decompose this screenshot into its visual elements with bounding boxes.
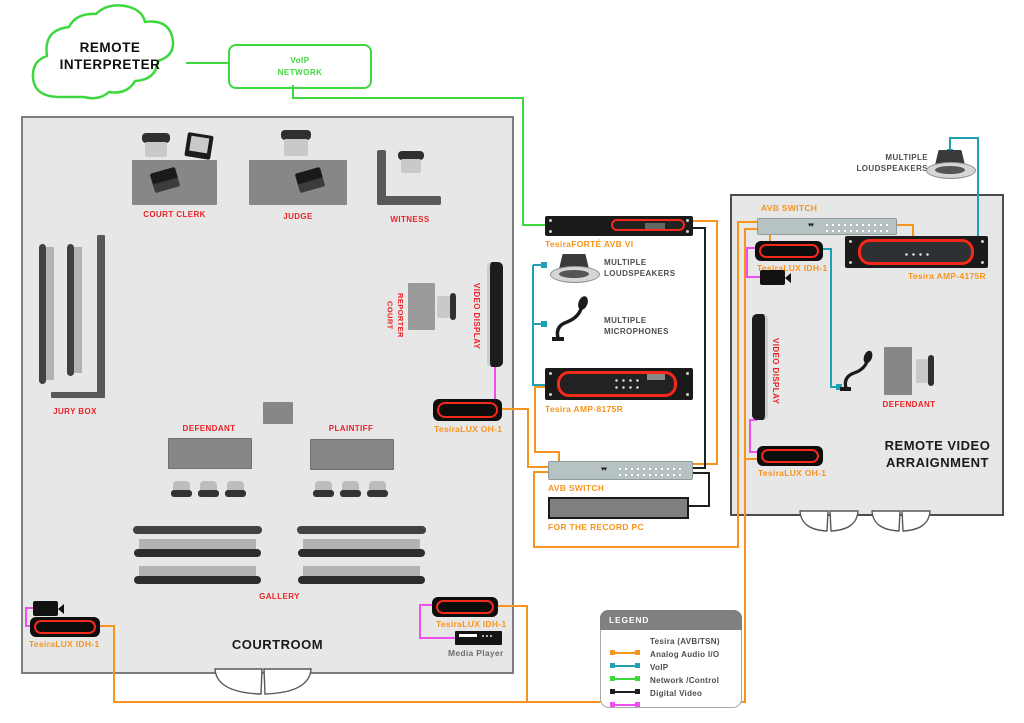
judge-label: JUDGE (249, 212, 347, 222)
court-reporter-label: COURT REPORTER (384, 282, 405, 348)
legend-label: Network /Control (650, 676, 719, 685)
legend: LEGEND Tesira (AVB/TSN) Analog Audio I/O… (600, 610, 742, 708)
jury-box-label: JURY BOX (40, 407, 110, 417)
jury-wall-h (51, 392, 105, 398)
remote-defendant-label: DEFENDANT (878, 400, 940, 410)
legend-label: Analog Audio I/O (650, 650, 719, 659)
tesiralux-idh1-right (432, 597, 498, 617)
tesira-amp-8175r-label: Tesira AMP-8175R (545, 404, 623, 414)
jury-bench-1 (39, 244, 46, 384)
remote-video-display (752, 314, 768, 420)
legend-label: VoIP (650, 663, 668, 672)
tesiralux-idh1-left (30, 617, 100, 637)
tesiraforte-avb-vi (545, 216, 693, 236)
microphone-icon (552, 296, 594, 342)
clerk-monitor (184, 132, 213, 160)
for-the-record-pc-label: FOR THE RECORD PC (548, 522, 644, 532)
chair-base (340, 490, 361, 497)
tesiralux-oh1-courtroom-label: TesiraLUX OH-1 (434, 424, 502, 434)
chair-base (171, 490, 192, 497)
chair-base (367, 490, 388, 497)
legend-item: Analog Audio I/O (610, 651, 640, 661)
court-clerk-label: COURT CLERK (132, 210, 217, 220)
remote-defendant-desk (884, 347, 912, 395)
tesira-amp-4175r-label: Tesira AMP-4175R (845, 271, 986, 281)
tesiralux-idh1-right-label: TesiraLUX IDH-1 (436, 619, 506, 629)
tesiralux-idh1-remote (755, 241, 823, 261)
remote-camera-icon (760, 270, 785, 285)
podium (263, 402, 293, 424)
voip-network-box: VoIP NETWORK (228, 44, 372, 89)
tesira-amp-4175r (845, 236, 988, 268)
multiple-loudspeakers-label: MULTIPLE LOUDSPEAKERS (604, 258, 686, 280)
avb-switch-center: ▾▾ (548, 461, 693, 480)
defendant-label: DEFENDANT (168, 424, 250, 434)
witness-chair-body (401, 159, 421, 173)
plaintiff-table (310, 439, 394, 470)
media-player-label: Media Player (448, 648, 504, 658)
for-the-record-pc (548, 497, 689, 519)
witness-wall-h (377, 196, 441, 205)
gallery-label: GALLERY (133, 592, 426, 602)
gallery-bench-front (298, 576, 425, 584)
reporter-chair (450, 293, 456, 320)
courtroom-title: COURTROOM (225, 637, 330, 654)
jury-bench-2 (67, 244, 74, 376)
remote-video-display-label: VIDEO DISPLAY (770, 326, 780, 416)
avb-switch-remote-label: AVB SWITCH (761, 203, 817, 213)
remote-defendant-chair-body (916, 359, 928, 383)
legend-swatch-video (610, 704, 640, 707)
gallery-bench-front (134, 576, 261, 584)
avb-switch-remote: ▾▾ (757, 218, 897, 235)
tesiralux-oh1-courtroom (433, 399, 502, 421)
loudspeaker-icon (550, 254, 602, 282)
courtroom-video-display-label: VIDEO DISPLAY (471, 266, 481, 366)
witness-label: WITNESS (378, 215, 442, 225)
media-player (455, 631, 502, 645)
chair-base (313, 490, 334, 497)
legend-item: Digital Video (610, 690, 640, 700)
voip-network-label: VoIP NETWORK (270, 55, 330, 77)
avb-switch-center-label: AVB SWITCH (548, 483, 604, 493)
tesiralux-idh1-left-label: TesiraLUX IDH-1 (29, 639, 99, 649)
tesiraforte-label: TesiraFORTÉ AVB VI (545, 239, 633, 249)
tesira-amp-8175r (545, 368, 693, 400)
courtroom-video-display (487, 262, 503, 367)
remote-arraignment-title: REMOTE VIDEO ARRAIGNMENT (880, 438, 995, 472)
jury-bench-1-seat (46, 247, 54, 380)
remote-loudspeaker-icon (926, 150, 978, 178)
clerk-chair-body (145, 142, 167, 157)
tesiralux-oh1-remote-label: TesiraLUX OH-1 (758, 468, 826, 478)
legend-label: Digital Video (650, 689, 702, 698)
gallery-bench-front (298, 549, 425, 557)
remote-interpreter-cloud-label: REMOTE INTERPRETER (50, 40, 170, 74)
legend-title: LEGEND (600, 610, 742, 630)
camera-icon (33, 601, 58, 616)
legend-label: Tesira (AVB/TSN) (650, 637, 720, 646)
tesiralux-oh1-remote (757, 446, 823, 466)
legend-item: VoIP (610, 664, 640, 674)
gallery-bench-front (134, 549, 261, 557)
judge-chair-body (284, 139, 308, 156)
courtroom-av-diagram: REMOTE INTERPRETER VoIP NETWORK COURT CL… (0, 0, 1024, 723)
jury-wall-v (97, 235, 105, 398)
chair-base (198, 490, 219, 497)
jury-bench-2-seat (74, 247, 82, 373)
defendant-table (168, 438, 252, 469)
plaintiff-label: PLAINTIFF (310, 424, 392, 434)
gallery-rail (133, 526, 262, 534)
legend-item: Tesira (AVB/TSN) (610, 638, 640, 648)
gallery-rail (297, 526, 426, 534)
remote-loudspeakers-label: MULTIPLE LOUDSPEAKERS (846, 153, 928, 175)
remote-microphone-icon (840, 350, 878, 392)
reporter-desk (408, 283, 435, 330)
remote-defendant-chair (928, 355, 934, 386)
reporter-chair-body (437, 296, 450, 318)
multiple-microphones-label: MULTIPLE MICROPHONES (604, 316, 686, 338)
chair-base (225, 490, 246, 497)
legend-item: Network /Control (610, 677, 640, 687)
